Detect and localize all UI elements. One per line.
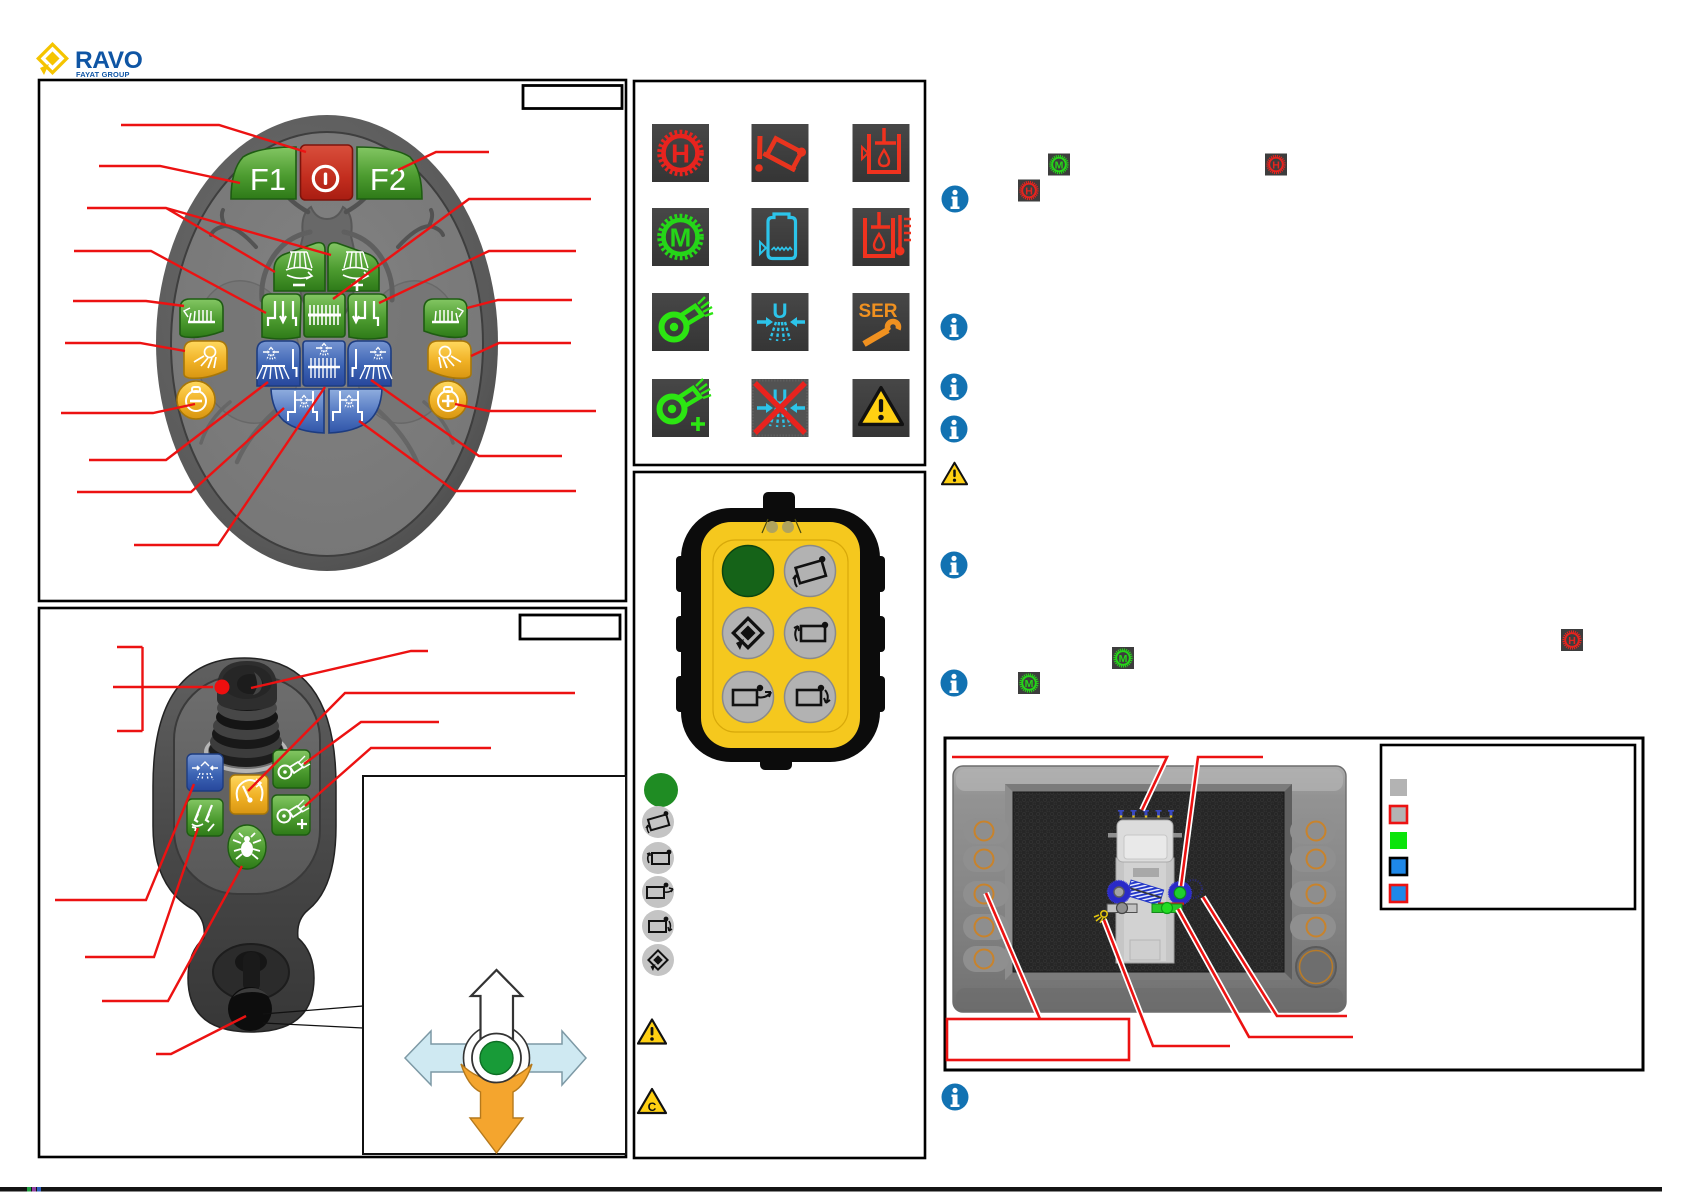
svg-text:C: C	[648, 1100, 657, 1114]
svg-text:U: U	[772, 300, 787, 323]
svg-text:F2: F2	[370, 162, 406, 197]
svg-text:M: M	[670, 223, 692, 253]
svg-text:FAYAT GROUP: FAYAT GROUP	[76, 70, 130, 79]
svg-text:F1: F1	[250, 162, 286, 197]
svg-text:H: H	[671, 139, 690, 169]
